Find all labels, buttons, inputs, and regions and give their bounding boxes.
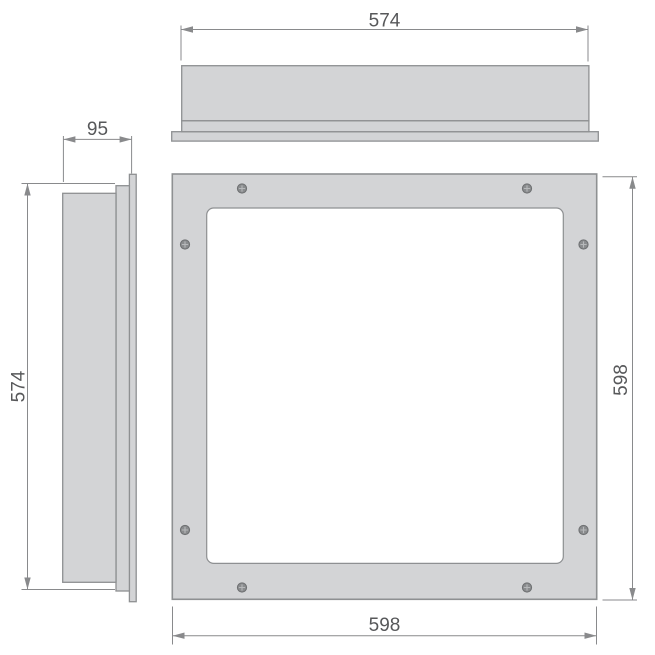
dim-front-width: 598 — [173, 607, 597, 645]
drawing-canvas: 574 95 574 — [0, 0, 655, 655]
dimension-label: 574 — [9, 370, 30, 402]
screw-icon — [180, 240, 189, 249]
front-view — [172, 174, 596, 599]
screw-icon — [522, 184, 531, 193]
top-view-flange — [172, 132, 599, 141]
screw-icon — [180, 525, 189, 534]
top-view — [172, 66, 599, 141]
screw-icon — [579, 240, 588, 249]
dim-side-depth: 95 — [63, 119, 131, 182]
dimension-label: 95 — [87, 119, 108, 140]
side-view — [63, 174, 137, 601]
screw-icon — [579, 525, 588, 534]
side-view-flange — [129, 174, 136, 601]
screw-icon — [237, 583, 246, 592]
side-view-body — [63, 193, 116, 582]
screw-icon — [522, 583, 531, 592]
top-view-strip — [182, 121, 589, 132]
screw-icon — [237, 184, 246, 193]
technical-drawing: 574 95 574 — [0, 0, 655, 655]
side-view-strip — [116, 186, 129, 591]
front-view-opening — [207, 208, 564, 563]
dim-top-width: 574 — [181, 11, 588, 62]
dimension-label: 598 — [611, 364, 632, 396]
dimension-label: 574 — [369, 11, 401, 32]
dimension-label: 598 — [369, 615, 401, 636]
dim-front-height: 598 — [603, 177, 638, 600]
top-view-body — [182, 66, 589, 121]
